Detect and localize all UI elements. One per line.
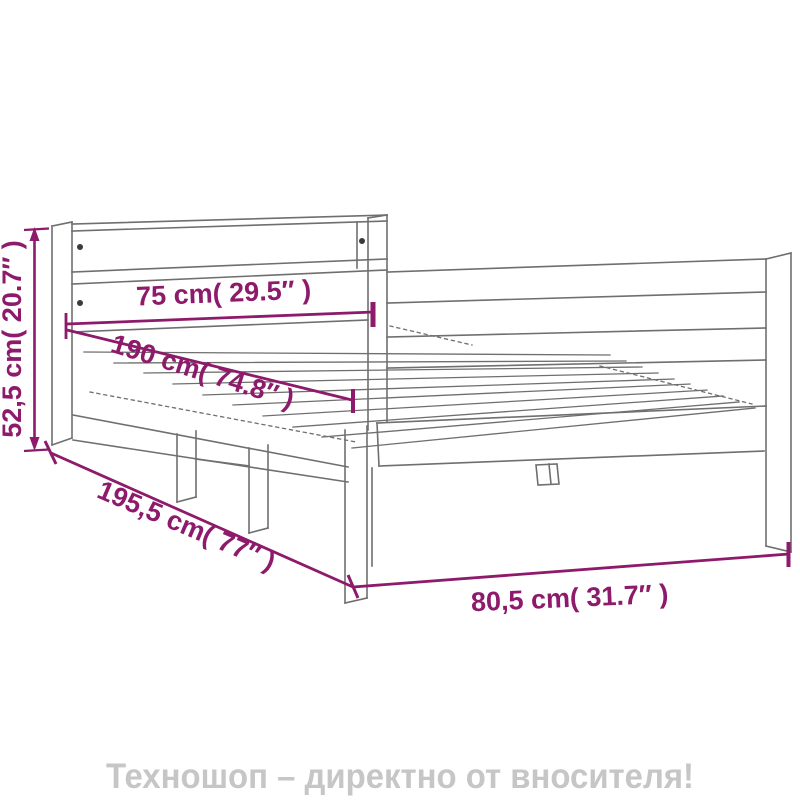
footer-banner-text: Техношоп – директно от вносителя! (24, 753, 776, 801)
dimension-width-top: 75 cm( 29.5″ ) (66, 275, 374, 339)
middle-leg-1 (177, 431, 196, 502)
dimension-length-total-label: 195,5 cm( 77″ ) (93, 475, 280, 577)
arrow-down-icon (30, 437, 40, 451)
screw-dot (77, 244, 83, 250)
dimension-length-total: 195,5 cm( 77″ ) (45, 441, 358, 598)
footboard-right-leg (766, 253, 791, 552)
screw-dot (359, 238, 365, 244)
bed-frame-drawing (52, 215, 791, 603)
dimension-width-top-label: 75 cm( 29.5″ ) (136, 275, 312, 312)
dimension-height: 52,5 cm( 20.7″ ) (0, 227, 49, 451)
dimension-width-bottom: 80,5 cm( 31.7″ ) (353, 542, 789, 617)
screw-dot (77, 300, 83, 306)
dimension-width-bottom-label: 80,5 cm( 31.7″ ) (470, 579, 669, 618)
left-side-rail (73, 415, 348, 482)
headboard-right-post (368, 215, 387, 566)
bed-dimension-diagram: 52,5 cm( 20.7″ ) 75 cm( 29.5″ ) 190 cm( … (0, 0, 800, 800)
center-support-block (536, 464, 559, 485)
footboard-rail (377, 406, 766, 466)
headboard-left-post (52, 222, 72, 445)
middle-leg-2 (249, 445, 268, 533)
dimension-height-label: 52,5 cm( 20.7″ ) (0, 240, 27, 438)
side-rails (387, 259, 766, 368)
